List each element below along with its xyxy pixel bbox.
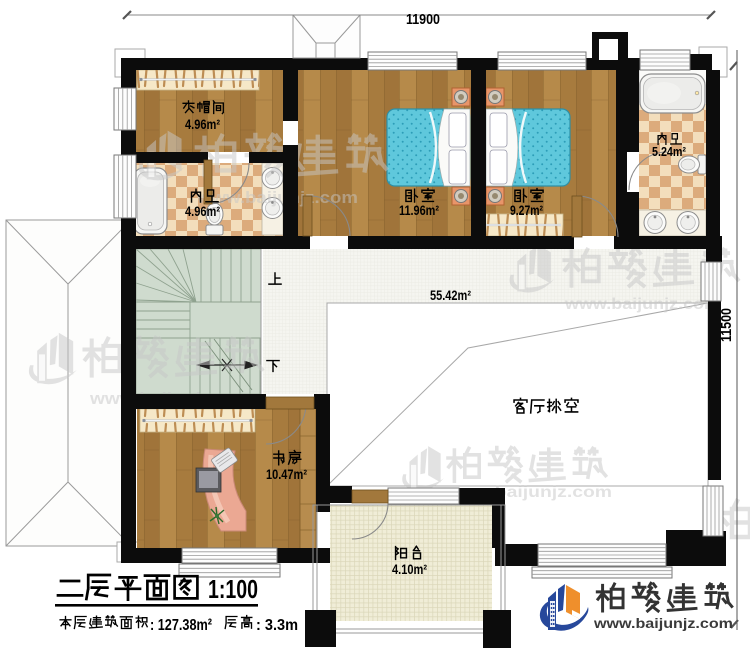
svg-text:: 3.3m: : 3.3m bbox=[256, 617, 298, 634]
svg-text:www.baijunjz.com: www.baijunjz.com bbox=[593, 615, 733, 631]
svg-text:10.47m²: 10.47m² bbox=[266, 466, 307, 482]
svg-text:11.96m²: 11.96m² bbox=[399, 202, 439, 218]
svg-text:5.24m²: 5.24m² bbox=[652, 145, 686, 159]
svg-text:www.baijunjz.com: www.baijunjz.com bbox=[564, 296, 720, 313]
svg-text:1:100: 1:100 bbox=[208, 574, 258, 604]
svg-text:4.10m²: 4.10m² bbox=[392, 561, 427, 577]
svg-text:11900: 11900 bbox=[406, 11, 440, 28]
svg-text:4.96m²: 4.96m² bbox=[185, 203, 220, 219]
svg-text:11500: 11500 bbox=[718, 308, 735, 342]
svg-text:9.27m²: 9.27m² bbox=[510, 202, 543, 218]
svg-text:: 127.38m²: : 127.38m² bbox=[150, 617, 212, 634]
svg-text:55.42m²: 55.42m² bbox=[430, 287, 471, 303]
svg-text:4.96m²: 4.96m² bbox=[185, 116, 220, 132]
